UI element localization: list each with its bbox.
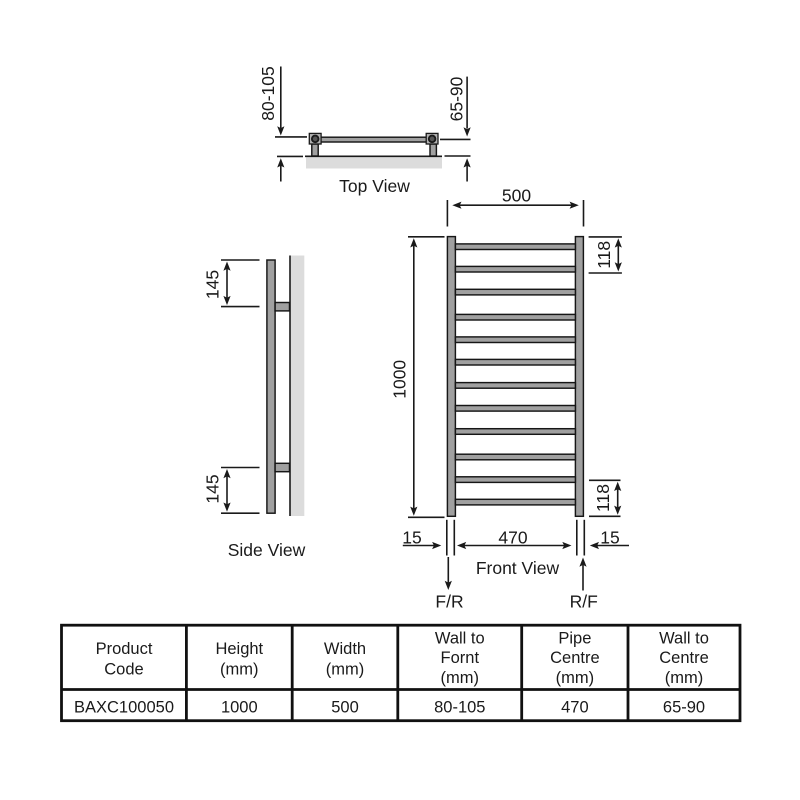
svg-text:500: 500 — [502, 186, 531, 206]
svg-text:(mm): (mm) — [220, 660, 258, 678]
svg-text:80-105: 80-105 — [258, 66, 278, 121]
svg-text:(mm): (mm) — [665, 669, 703, 687]
svg-text:Width: Width — [324, 640, 366, 658]
svg-text:118: 118 — [594, 241, 614, 269]
svg-text:15: 15 — [600, 528, 619, 548]
svg-text:Pipe: Pipe — [558, 629, 591, 647]
svg-text:BAXC100050: BAXC100050 — [74, 699, 174, 717]
svg-text:1000: 1000 — [221, 699, 258, 717]
svg-text:145: 145 — [203, 270, 223, 299]
svg-text:65-90: 65-90 — [663, 699, 705, 717]
svg-text:1000: 1000 — [389, 360, 409, 399]
svg-text:F/R: F/R — [435, 592, 463, 612]
svg-text:Wall to: Wall to — [435, 629, 485, 647]
svg-text:500: 500 — [331, 699, 359, 717]
svg-text:(mm): (mm) — [556, 669, 594, 687]
svg-text:470: 470 — [561, 699, 589, 717]
svg-text:Product: Product — [96, 640, 153, 658]
svg-text:Top View: Top View — [339, 176, 410, 196]
svg-text:Wall to: Wall to — [659, 629, 709, 647]
svg-text:15: 15 — [402, 528, 421, 548]
svg-text:470: 470 — [498, 528, 527, 548]
svg-text:80-105: 80-105 — [434, 699, 485, 717]
svg-text:Front View: Front View — [476, 558, 560, 578]
svg-text:Side View: Side View — [228, 540, 306, 560]
svg-text:118: 118 — [593, 484, 613, 512]
svg-text:Centre: Centre — [659, 649, 709, 667]
svg-text:65-90: 65-90 — [446, 76, 466, 121]
svg-text:(mm): (mm) — [441, 669, 479, 687]
svg-text:Code: Code — [104, 660, 143, 678]
svg-text:Height: Height — [215, 640, 263, 658]
svg-text:Centre: Centre — [550, 649, 600, 667]
svg-text:Fornt: Fornt — [441, 649, 480, 667]
svg-text:(mm): (mm) — [326, 660, 364, 678]
svg-text:145: 145 — [203, 474, 223, 503]
svg-text:R/F: R/F — [570, 592, 598, 612]
